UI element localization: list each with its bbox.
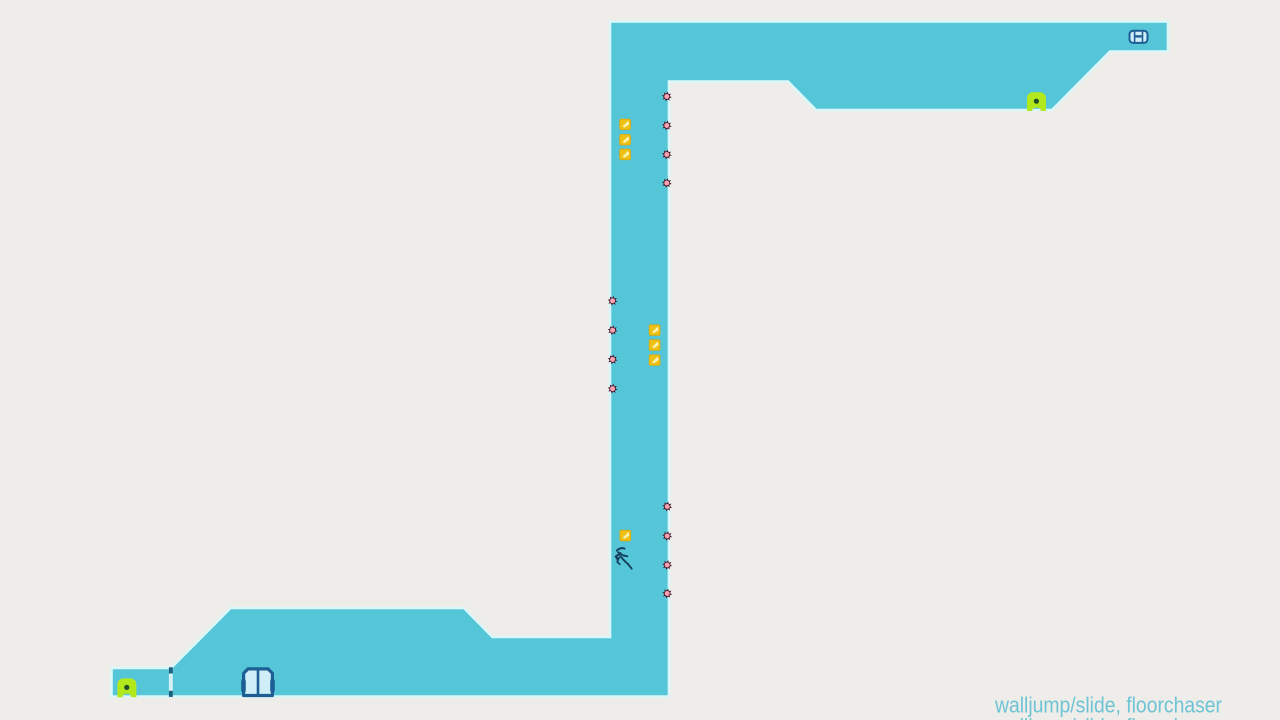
svg-text:walljump/slide, floorchaser: walljump/slide, floorchaser [994,715,1222,720]
